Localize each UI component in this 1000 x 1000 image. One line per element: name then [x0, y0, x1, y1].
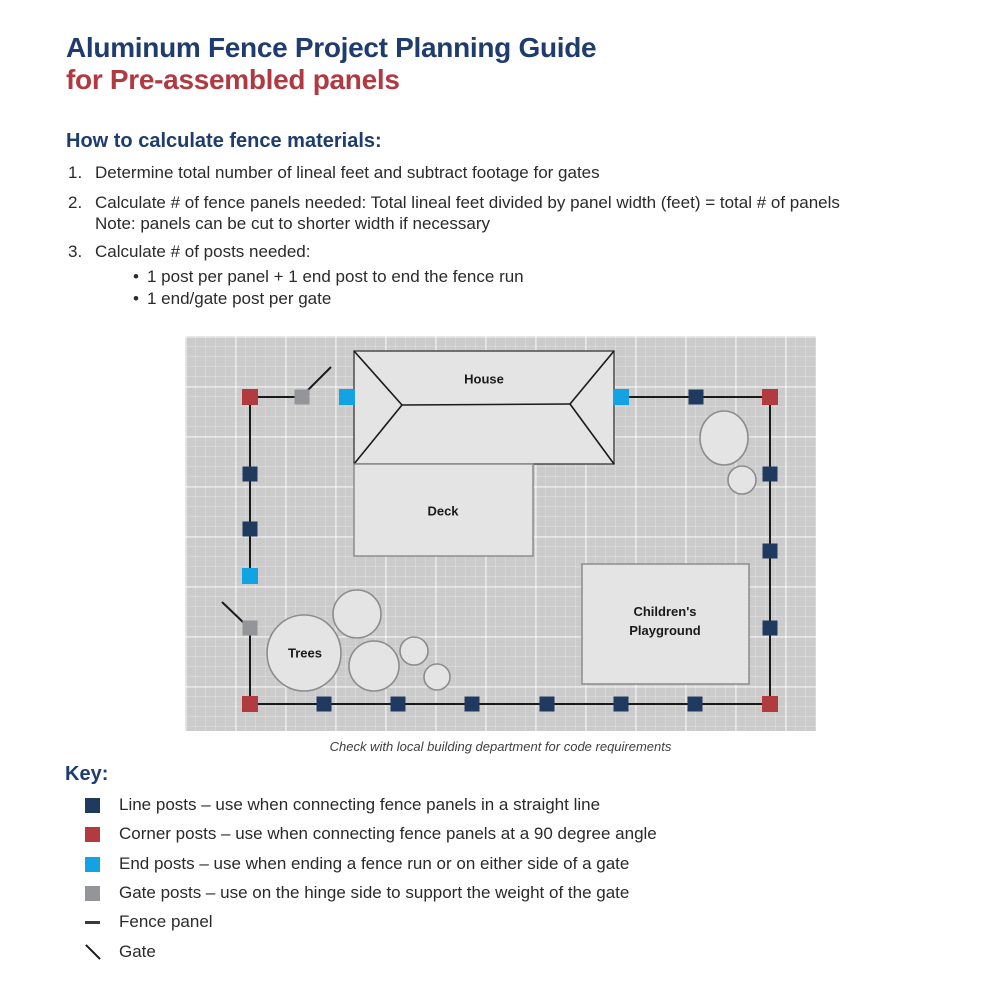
post-line	[763, 467, 778, 482]
post-line	[243, 467, 258, 482]
post-line	[688, 697, 703, 712]
trees-label: Trees	[288, 644, 322, 663]
key-item-label: End posts – use when ending a fence run …	[119, 854, 629, 874]
key-item-end-posts: End posts – use when ending a fence run …	[85, 854, 629, 874]
post-end	[242, 568, 258, 584]
post-line	[540, 697, 555, 712]
gate-symbol	[85, 945, 100, 960]
planning-guide-page: Aluminum Fence Project Planning Guide fo…	[0, 0, 1000, 1000]
post-line	[689, 390, 704, 405]
end-post-swatch	[85, 857, 100, 872]
post-corner	[762, 389, 778, 405]
post-line	[243, 522, 258, 537]
post-line	[763, 544, 778, 559]
post-corner	[242, 696, 258, 712]
post-corner	[242, 389, 258, 405]
post-line	[763, 621, 778, 636]
key-heading: Key:	[65, 763, 108, 785]
corner-post-swatch	[85, 827, 100, 842]
key-item-label: Corner posts – use when connecting fence…	[119, 824, 657, 844]
list-text-line: Calculate # of fence panels needed: Tota…	[95, 192, 940, 213]
key-item-label: Gate posts – use on the hinge side to su…	[119, 883, 629, 903]
fence-panel-symbol	[85, 921, 100, 924]
post-line	[317, 697, 332, 712]
tree-circle	[333, 590, 381, 638]
list-text: Calculate # of posts needed:	[95, 241, 940, 262]
page-title: Aluminum Fence Project Planning Guide	[66, 33, 596, 63]
list-text-note: Note: panels can be cut to shorter width…	[95, 213, 940, 234]
house-roof-line	[402, 404, 570, 405]
key-item-gate-posts: Gate posts – use on the hinge side to su…	[85, 883, 629, 903]
house-footprint	[354, 351, 614, 464]
tree-circle	[400, 637, 428, 665]
post-line	[614, 697, 629, 712]
bullet-marker: •	[133, 288, 143, 309]
site-plan-svg	[185, 336, 816, 731]
bush-circle	[728, 466, 756, 494]
tree-circle	[349, 641, 399, 691]
key-item-label: Fence panel	[119, 912, 213, 932]
list-text: Calculate # of fence panels needed: Tota…	[95, 192, 940, 234]
gate-line	[222, 602, 245, 624]
key-item-corner-posts: Corner posts – use when connecting fence…	[85, 824, 657, 844]
list-number: 1.	[68, 162, 92, 183]
post-end	[613, 389, 629, 405]
post-gate	[295, 390, 310, 405]
post-line	[465, 697, 480, 712]
line-post-swatch	[85, 798, 100, 813]
post-line	[391, 697, 406, 712]
post-corner	[762, 696, 778, 712]
list-number: 2.	[68, 192, 92, 213]
list-number: 3.	[68, 241, 92, 262]
house-label: House	[464, 370, 504, 389]
playground-label: Children's Playground	[629, 602, 701, 640]
bullet-marker: •	[133, 266, 143, 287]
list-text: Determine total number of lineal feet an…	[95, 162, 940, 183]
post-gate	[243, 621, 258, 636]
tree-circle	[424, 664, 450, 690]
bullet-text: 1 post per panel + 1 end post to end the…	[147, 266, 847, 287]
page-subtitle: for Pre-assembled panels	[66, 65, 400, 95]
section-heading: How to calculate fence materials:	[66, 130, 382, 152]
diagram-caption: Check with local building department for…	[185, 739, 816, 754]
key-item-gate: Gate	[85, 942, 156, 962]
key-item-line-posts: Line posts – use when connecting fence p…	[85, 795, 600, 815]
key-item-label: Line posts – use when connecting fence p…	[119, 795, 600, 815]
site-plan-diagram: House Deck Trees Children's Playground	[185, 336, 816, 731]
bush-circle	[700, 411, 748, 465]
post-end	[339, 389, 355, 405]
bullet-text: 1 end/gate post per gate	[147, 288, 847, 309]
gate-line	[308, 367, 331, 390]
deck-label: Deck	[427, 502, 458, 521]
gate-post-swatch	[85, 886, 100, 901]
key-item-label: Gate	[119, 942, 156, 962]
key-item-fence-panel: Fence panel	[85, 912, 213, 932]
